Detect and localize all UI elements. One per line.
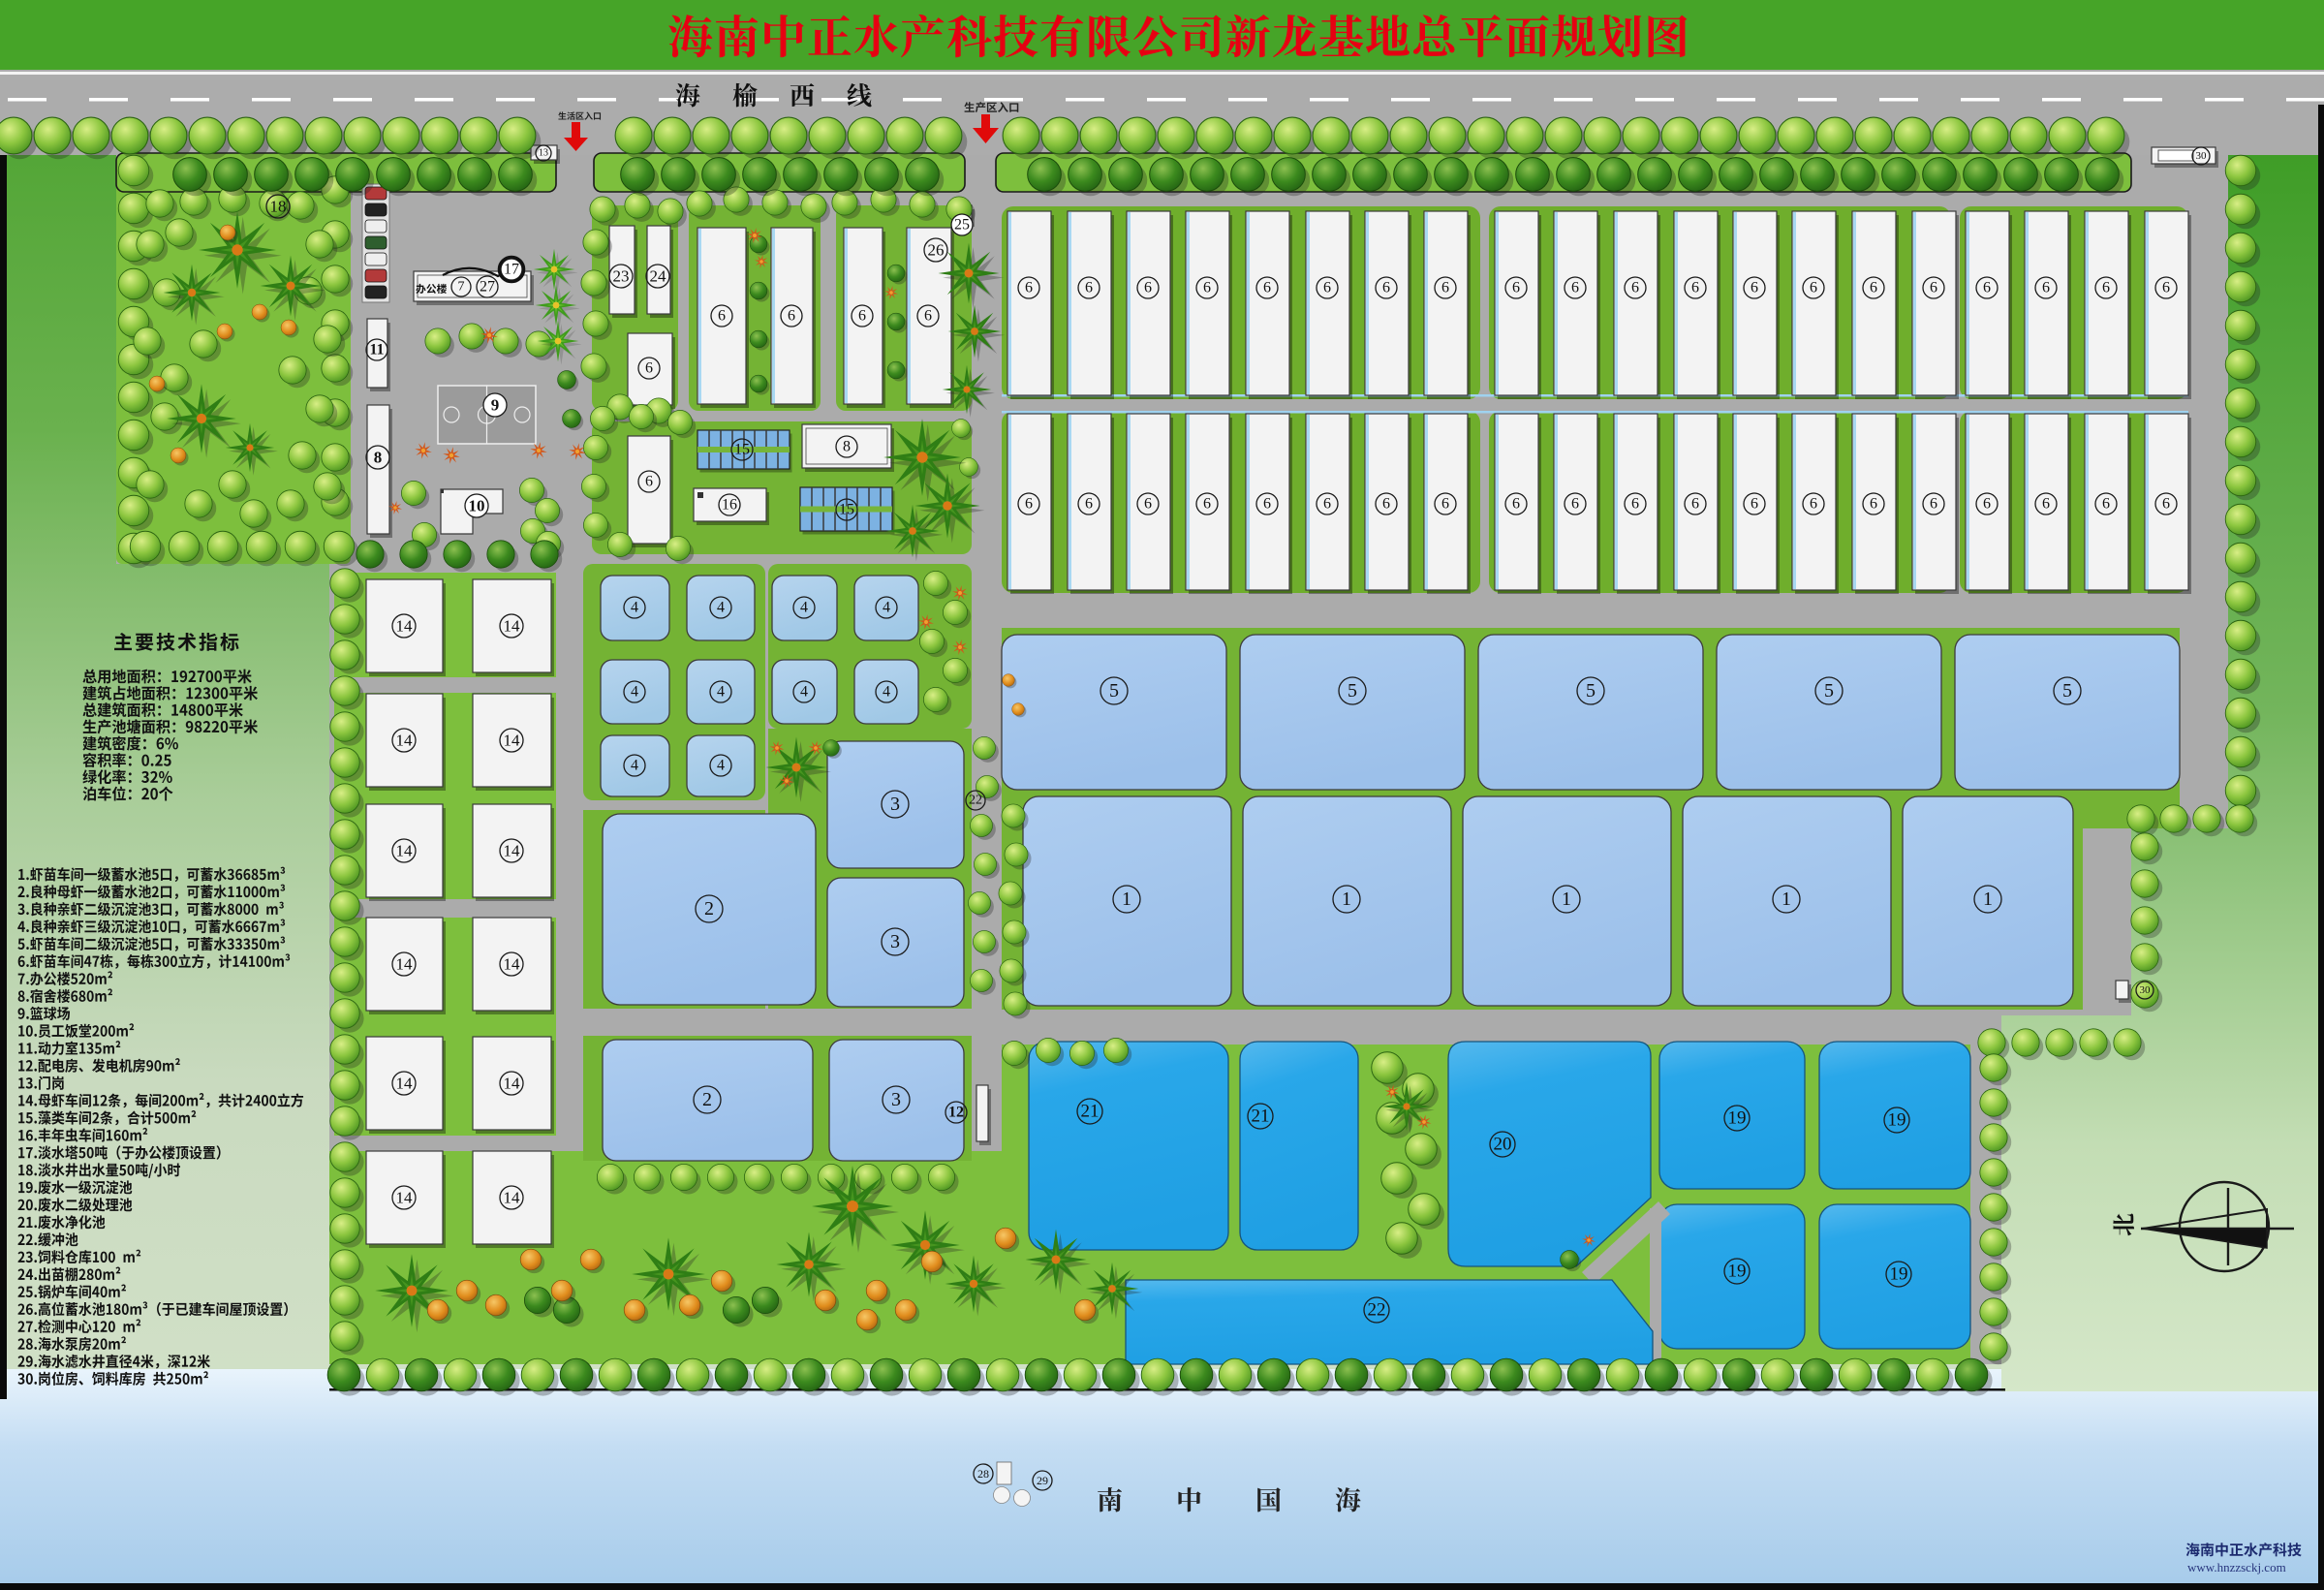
svg-text:14: 14 bbox=[396, 955, 414, 974]
svg-text:www.hnzzsckj.com: www.hnzzsckj.com bbox=[2187, 1560, 2286, 1574]
svg-text:6: 6 bbox=[1691, 496, 1699, 513]
svg-text:5: 5 bbox=[1824, 680, 1834, 701]
svg-text:6: 6 bbox=[718, 308, 726, 325]
svg-text:6: 6 bbox=[2102, 280, 2110, 296]
svg-text:25: 25 bbox=[954, 217, 970, 234]
svg-text:1: 1 bbox=[1122, 889, 1131, 910]
svg-text:6: 6 bbox=[1983, 496, 1991, 513]
svg-text:1: 1 bbox=[1983, 889, 1993, 910]
svg-text:18: 18 bbox=[270, 198, 287, 216]
svg-text:8: 8 bbox=[374, 449, 383, 467]
svg-text:6: 6 bbox=[1025, 280, 1033, 296]
svg-text:6: 6 bbox=[1025, 496, 1033, 513]
svg-text:6: 6 bbox=[1203, 280, 1211, 296]
svg-text:6: 6 bbox=[1571, 280, 1579, 296]
svg-text:6: 6 bbox=[645, 474, 653, 490]
svg-text:6: 6 bbox=[1631, 280, 1639, 296]
svg-text:14: 14 bbox=[396, 842, 414, 860]
svg-text:14: 14 bbox=[504, 1189, 521, 1207]
svg-text:6: 6 bbox=[858, 308, 866, 325]
svg-text:7: 7 bbox=[458, 280, 465, 295]
svg-text:6: 6 bbox=[1751, 280, 1758, 296]
svg-text:4: 4 bbox=[717, 684, 725, 701]
svg-text:14: 14 bbox=[504, 732, 521, 750]
svg-text:22: 22 bbox=[969, 794, 982, 808]
svg-text:6: 6 bbox=[788, 308, 795, 325]
svg-text:11: 11 bbox=[369, 342, 384, 359]
svg-text:20: 20 bbox=[1494, 1135, 1512, 1155]
svg-text:6: 6 bbox=[1870, 280, 1877, 296]
svg-text:5: 5 bbox=[1586, 680, 1596, 701]
svg-text:6: 6 bbox=[1441, 280, 1449, 296]
svg-text:19: 19 bbox=[1728, 1262, 1747, 1282]
svg-text:6: 6 bbox=[1085, 280, 1093, 296]
svg-text:4: 4 bbox=[717, 600, 725, 616]
svg-text:6: 6 bbox=[1263, 280, 1271, 296]
svg-text:3: 3 bbox=[890, 794, 900, 815]
svg-text:6: 6 bbox=[1512, 496, 1520, 513]
svg-text:13: 13 bbox=[539, 148, 548, 159]
svg-text:6: 6 bbox=[1144, 496, 1152, 513]
svg-text:10: 10 bbox=[469, 497, 485, 515]
svg-text:6: 6 bbox=[1382, 496, 1390, 513]
svg-text:3: 3 bbox=[890, 931, 900, 952]
svg-text:6: 6 bbox=[1382, 280, 1390, 296]
svg-text:14: 14 bbox=[396, 617, 414, 636]
svg-text:6: 6 bbox=[1323, 280, 1331, 296]
svg-text:4: 4 bbox=[717, 758, 725, 774]
svg-text:3: 3 bbox=[891, 1089, 901, 1110]
svg-text:23: 23 bbox=[613, 267, 630, 286]
svg-text:17: 17 bbox=[504, 262, 519, 278]
svg-text:24: 24 bbox=[650, 267, 667, 286]
svg-text:6: 6 bbox=[645, 360, 653, 377]
svg-text:1: 1 bbox=[1342, 889, 1351, 910]
svg-text:4: 4 bbox=[800, 684, 808, 701]
svg-text:26: 26 bbox=[928, 241, 945, 260]
svg-text:6: 6 bbox=[2162, 496, 2170, 513]
svg-text:2: 2 bbox=[702, 1089, 712, 1110]
svg-text:5: 5 bbox=[1348, 680, 1357, 701]
svg-text:6: 6 bbox=[1512, 280, 1520, 296]
svg-text:22: 22 bbox=[1368, 1300, 1386, 1321]
svg-text:28: 28 bbox=[977, 1467, 989, 1481]
svg-text:19: 19 bbox=[1888, 1110, 1906, 1131]
svg-text:6: 6 bbox=[1571, 496, 1579, 513]
svg-text:6: 6 bbox=[1930, 496, 1937, 513]
svg-text:6: 6 bbox=[1983, 280, 1991, 296]
svg-text:6: 6 bbox=[1323, 496, 1331, 513]
svg-text:6: 6 bbox=[1203, 496, 1211, 513]
svg-text:6: 6 bbox=[924, 308, 932, 325]
svg-text:2: 2 bbox=[704, 898, 714, 920]
svg-text:4: 4 bbox=[800, 600, 808, 616]
svg-text:14: 14 bbox=[504, 617, 521, 636]
svg-text:5: 5 bbox=[1109, 680, 1119, 701]
svg-text:4: 4 bbox=[883, 684, 890, 701]
svg-text:14: 14 bbox=[396, 732, 414, 750]
svg-text:16: 16 bbox=[722, 497, 737, 514]
svg-text:4: 4 bbox=[631, 684, 638, 701]
svg-text:6: 6 bbox=[2102, 496, 2110, 513]
svg-text:14: 14 bbox=[504, 1075, 521, 1093]
svg-text:29: 29 bbox=[1037, 1474, 1048, 1487]
svg-text:6: 6 bbox=[1631, 496, 1639, 513]
svg-text:6: 6 bbox=[2042, 496, 2050, 513]
svg-text:9: 9 bbox=[491, 396, 500, 415]
svg-text:30: 30 bbox=[2140, 984, 2152, 996]
svg-text:8: 8 bbox=[843, 439, 851, 455]
svg-text:6: 6 bbox=[1441, 496, 1449, 513]
svg-text:6: 6 bbox=[1751, 496, 1758, 513]
svg-text:4: 4 bbox=[631, 600, 638, 616]
svg-text:6: 6 bbox=[1870, 496, 1877, 513]
svg-text:15: 15 bbox=[839, 502, 854, 518]
svg-text:6: 6 bbox=[1263, 496, 1271, 513]
svg-text:6: 6 bbox=[1810, 496, 1817, 513]
svg-text:5: 5 bbox=[2062, 680, 2072, 701]
svg-text:1: 1 bbox=[1562, 889, 1571, 910]
svg-text:14: 14 bbox=[396, 1075, 414, 1093]
svg-text:4: 4 bbox=[631, 758, 638, 774]
svg-text:15: 15 bbox=[734, 442, 750, 458]
svg-text:14: 14 bbox=[504, 842, 521, 860]
svg-text:27: 27 bbox=[480, 279, 495, 296]
svg-text:6: 6 bbox=[2162, 280, 2170, 296]
svg-text:6: 6 bbox=[1691, 280, 1699, 296]
svg-text:1: 1 bbox=[1782, 889, 1791, 910]
svg-text:6: 6 bbox=[1144, 280, 1152, 296]
svg-text:4: 4 bbox=[883, 600, 890, 616]
svg-text:19: 19 bbox=[1890, 1264, 1908, 1285]
svg-text:12: 12 bbox=[948, 1105, 964, 1121]
svg-text:21: 21 bbox=[1081, 1102, 1100, 1122]
svg-text:30: 30 bbox=[2196, 150, 2208, 162]
svg-text:6: 6 bbox=[1085, 496, 1093, 513]
svg-text:14: 14 bbox=[504, 955, 521, 974]
svg-text:19: 19 bbox=[1728, 1108, 1747, 1129]
svg-text:6: 6 bbox=[2042, 280, 2050, 296]
svg-text:6: 6 bbox=[1810, 280, 1817, 296]
svg-text:21: 21 bbox=[1252, 1107, 1270, 1127]
svg-text:6: 6 bbox=[1930, 280, 1937, 296]
svg-text:14: 14 bbox=[396, 1189, 414, 1207]
